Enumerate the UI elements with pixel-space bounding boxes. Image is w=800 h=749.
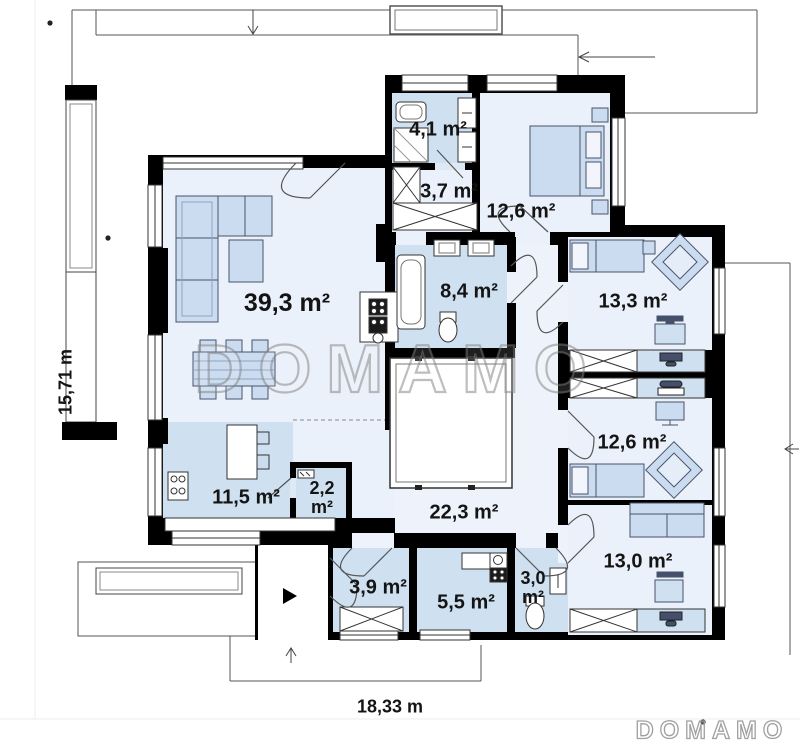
wc-area-value: 3,0 (520, 568, 545, 588)
window (714, 448, 725, 516)
wc-area-unit: m² (522, 587, 544, 607)
window (612, 118, 625, 206)
wardrobe (393, 203, 477, 230)
window (402, 75, 468, 91)
floor-plan: 39,3 m² 4,1 m² 3,7 m² 12,6 m² 8,4 m² 13,… (0, 0, 800, 749)
wardrobe (570, 609, 637, 632)
room-area-label-bedroom-right-2: 12,6 m² (598, 433, 667, 454)
room-area-label-entry: 3,9 m² (349, 578, 407, 599)
room-area-label-bedroom-top: 12,6 m² (487, 202, 556, 223)
room-area-label-wardrobe-hall: 3,7 m² (420, 182, 478, 203)
coffee-table (229, 240, 263, 282)
pantry-area-value: 2,2 (309, 478, 334, 498)
watermark: DOMAMO (194, 330, 601, 408)
utility-counter (462, 553, 490, 569)
room-area-label-pantry: 2,2 m² (309, 479, 334, 517)
utility-sink-stove (490, 553, 507, 582)
room-area-label-utility: 5,5 m² (437, 593, 495, 614)
wardrobe (393, 167, 420, 203)
brand-logo: DOMAMO (636, 717, 789, 746)
floor-porch (258, 545, 328, 640)
room-area-label-bedroom-right-3: 13,0 m² (604, 552, 673, 573)
window (148, 185, 162, 247)
pantry-area-unit: m² (311, 497, 333, 517)
sink (434, 240, 460, 256)
bed (570, 464, 644, 497)
room-area-label-bathroom-small: 4,1 m² (409, 120, 467, 141)
terrace (78, 562, 258, 636)
bathtub (397, 255, 425, 329)
sofa (630, 503, 704, 537)
sink (468, 240, 494, 256)
room-area-label-wc: 3,0 m² (520, 569, 545, 607)
window (148, 448, 162, 516)
kitchen-counter (165, 518, 335, 531)
window (163, 157, 303, 169)
window (714, 545, 725, 607)
printer-icon (658, 381, 684, 395)
room-area-label-bathroom-main: 8,4 m² (440, 282, 498, 303)
fireplace (376, 224, 387, 262)
skylight (390, 6, 502, 34)
desk (655, 572, 683, 602)
room-area-label-living: 39,3 m² (244, 290, 330, 316)
room-area-label-bedroom-right-1: 13,3 m² (599, 292, 668, 313)
bed (570, 240, 655, 272)
desk (655, 316, 685, 344)
room-area-label-hall: 22,3 m² (430, 503, 499, 524)
room-area-label-kitchen: 11,5 m² (212, 488, 280, 509)
window (172, 531, 260, 545)
dimension-width-label: 18,33 m (357, 697, 423, 718)
window (148, 335, 162, 420)
wardrobe (340, 607, 403, 631)
dimension-height-label: 15,71 m (56, 349, 77, 415)
window (487, 75, 557, 91)
window (420, 630, 470, 640)
cooktop (168, 472, 188, 500)
window (714, 268, 725, 334)
wc-sink (550, 568, 566, 594)
